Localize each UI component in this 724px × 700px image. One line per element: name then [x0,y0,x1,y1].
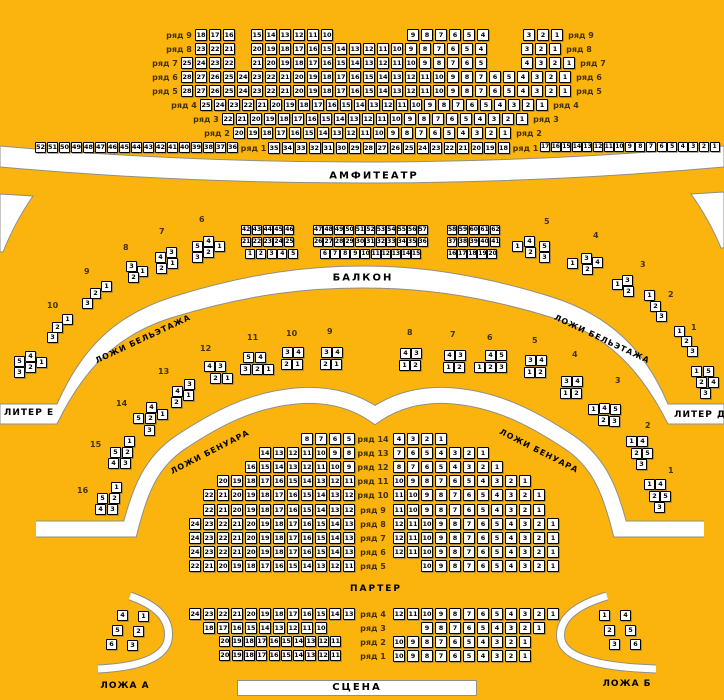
seat-6[interactable]: 6 [463,489,475,501]
seat-7[interactable]: 7 [407,461,419,473]
seat-60[interactable]: 60 [469,225,479,235]
seat-15[interactable]: 15 [315,532,327,544]
seat-7[interactable]: 7 [435,475,447,487]
seat-11[interactable]: 11 [330,650,341,661]
seat-18[interactable]: 18 [273,608,285,620]
seat-10[interactable]: 10 [410,99,422,111]
seat-16[interactable]: 16 [245,461,257,473]
seat-1[interactable]: 1 [222,373,233,384]
seat-43[interactable]: 43 [143,142,154,153]
seat-7[interactable]: 7 [415,127,427,139]
seat-16[interactable]: 16 [326,99,338,111]
seat-7[interactable]: 7 [435,650,447,662]
seat-7[interactable]: 7 [435,636,447,648]
seat-1[interactable]: 1 [691,366,702,377]
seat-22[interactable]: 22 [217,546,229,558]
seat-19[interactable]: 19 [259,532,271,544]
seat-21[interactable]: 21 [231,546,243,558]
seat-51[interactable]: 51 [47,142,58,153]
seat-3[interactable]: 3 [656,311,667,322]
seat-38[interactable]: 38 [458,237,468,247]
seat-24[interactable]: 24 [189,546,201,558]
seat-5[interactable]: 5 [503,71,515,83]
seat-14[interactable]: 14 [315,504,327,516]
seat-12[interactable]: 12 [393,546,405,558]
seat-22[interactable]: 22 [217,518,229,530]
seat-10[interactable]: 10 [393,475,405,487]
seat-42[interactable]: 42 [241,225,251,235]
seat-1[interactable]: 1 [183,390,194,401]
seat-18[interactable]: 18 [298,99,310,111]
seat-6[interactable]: 6 [449,650,461,662]
seat-5[interactable]: 5 [97,493,108,504]
seat-1[interactable]: 1 [644,479,655,490]
seat-5[interactable]: 5 [667,142,677,152]
seat-24[interactable]: 24 [195,57,207,69]
seat-16[interactable]: 16 [289,127,301,139]
seat-4[interactable]: 4 [620,610,631,621]
seat-9[interactable]: 9 [407,475,419,487]
seat-43[interactable]: 43 [252,225,262,235]
seat-3[interactable]: 3 [471,127,483,139]
seat-9[interactable]: 9 [405,43,417,55]
seat-1[interactable]: 1 [62,314,73,325]
seat-7[interactable]: 7 [646,142,656,152]
seat-21[interactable]: 21 [236,113,248,125]
seat-46[interactable]: 46 [284,225,294,235]
seat-1[interactable]: 1 [547,518,559,530]
seat-7[interactable]: 7 [449,489,461,501]
seat-7[interactable]: 7 [475,85,487,97]
seat-1[interactable]: 1 [474,362,485,373]
seat-18[interactable]: 18 [273,546,285,558]
seat-7[interactable]: 7 [432,113,444,125]
seat-4[interactable]: 4 [117,610,128,621]
seat-1[interactable]: 1 [435,433,447,445]
seat-18[interactable]: 18 [261,127,273,139]
seat-9[interactable]: 9 [387,127,399,139]
seat-2[interactable]: 2 [598,415,609,426]
seat-19[interactable]: 19 [245,489,257,501]
seat-1[interactable]: 1 [519,650,531,662]
seat-18[interactable]: 18 [279,43,291,55]
seat-2[interactable]: 2 [623,286,634,297]
seat-16[interactable]: 16 [307,43,319,55]
seat-30[interactable]: 30 [336,142,348,154]
seat-3[interactable]: 3 [508,99,520,111]
seat-10[interactable]: 10 [329,461,341,473]
seat-41[interactable]: 41 [167,142,178,153]
seat-2[interactable]: 2 [122,447,133,458]
seat-3[interactable]: 3 [491,636,503,648]
seat-4[interactable]: 4 [505,546,517,558]
seat-14[interactable]: 14 [401,249,411,259]
seat-18[interactable]: 18 [273,532,285,544]
seat-8[interactable]: 8 [461,85,473,97]
seat-13[interactable]: 13 [329,504,341,516]
seat-6[interactable]: 6 [449,475,461,487]
seat-25[interactable]: 25 [223,71,235,83]
seat-8[interactable]: 8 [418,113,430,125]
seat-2[interactable]: 2 [696,377,707,388]
seat-18[interactable]: 18 [498,142,510,154]
seat-19[interactable]: 19 [259,546,271,558]
seat-19[interactable]: 19 [279,57,291,69]
seat-12[interactable]: 12 [377,57,389,69]
seat-21[interactable]: 21 [279,71,291,83]
seat-3[interactable]: 3 [654,502,665,513]
seat-20[interactable]: 20 [217,475,229,487]
seat-53[interactable]: 53 [376,225,386,235]
seat-8[interactable]: 8 [421,475,433,487]
seat-24[interactable]: 24 [189,518,201,530]
seat-21[interactable]: 21 [457,142,469,154]
seat-20[interactable]: 20 [251,43,263,55]
seat-4[interactable]: 4 [25,351,36,362]
seat-16[interactable]: 16 [301,546,313,558]
seat-14[interactable]: 14 [329,546,341,558]
seat-1[interactable]: 1 [599,610,610,621]
seat-3[interactable]: 3 [525,355,536,366]
seat-4[interactable]: 4 [655,479,666,490]
seat-5[interactable]: 5 [491,532,503,544]
seat-12[interactable]: 12 [393,608,405,620]
seat-17[interactable]: 17 [540,142,550,152]
seat-18[interactable]: 18 [203,622,215,634]
seat-45[interactable]: 45 [119,142,130,153]
seat-7[interactable]: 7 [315,433,327,445]
seat-1[interactable]: 1 [536,99,548,111]
seat-4[interactable]: 4 [572,376,583,387]
seat-2[interactable]: 2 [145,413,156,424]
seat-32[interactable]: 32 [376,237,386,247]
seat-15[interactable]: 15 [561,142,571,152]
seat-3[interactable]: 3 [282,347,293,358]
seat-15[interactable]: 15 [363,85,375,97]
seat-26[interactable]: 26 [209,85,221,97]
seat-12[interactable]: 12 [287,622,299,634]
seat-22[interactable]: 22 [242,99,254,111]
seat-3[interactable]: 3 [496,362,507,373]
seat-18[interactable]: 18 [467,249,477,259]
seat-3[interactable]: 3 [531,85,543,97]
seat-1[interactable]: 1 [214,241,225,252]
seat-13[interactable]: 13 [331,127,343,139]
seat-1[interactable]: 1 [36,357,47,368]
seat-5[interactable]: 5 [480,99,492,111]
seat-54[interactable]: 54 [386,225,396,235]
seat-10[interactable]: 10 [393,650,405,662]
seat-1[interactable]: 1 [547,546,559,558]
seat-7[interactable]: 7 [449,622,461,634]
seat-20[interactable]: 20 [233,127,245,139]
seat-4[interactable]: 4 [599,403,610,414]
seat-1[interactable]: 1 [547,560,559,572]
seat-24[interactable]: 24 [189,608,201,620]
seat-2[interactable]: 2 [631,448,642,459]
seat-22[interactable]: 22 [203,504,215,516]
seat-2[interactable]: 2 [109,493,120,504]
seat-13[interactable]: 13 [391,85,403,97]
seat-14[interactable]: 14 [315,489,327,501]
seat-46[interactable]: 46 [107,142,118,153]
seat-9[interactable]: 9 [421,489,433,501]
seat-17[interactable]: 17 [217,622,229,634]
seat-4[interactable]: 4 [592,257,603,268]
seat-4[interactable]: 4 [435,447,447,459]
seat-5[interactable]: 5 [642,448,653,459]
seat-21[interactable]: 21 [231,518,243,530]
seat-6[interactable]: 6 [489,71,501,83]
seat-58[interactable]: 58 [447,225,457,235]
seat-13[interactable]: 13 [391,71,403,83]
seat-4[interactable]: 4 [108,458,119,469]
seat-2[interactable]: 2 [535,367,546,378]
seat-27[interactable]: 27 [195,85,207,97]
seat-15[interactable]: 15 [320,113,332,125]
seat-15[interactable]: 15 [301,504,313,516]
seat-20[interactable]: 20 [217,560,229,572]
seat-36[interactable]: 36 [418,237,428,247]
seat-2[interactable]: 2 [203,247,214,258]
seat-16[interactable]: 16 [273,560,285,572]
seat-10[interactable]: 10 [614,142,624,152]
seat-5[interactable]: 5 [491,560,503,572]
seat-16[interactable]: 16 [301,532,313,544]
seat-11[interactable]: 11 [407,608,419,620]
seat-3[interactable]: 3 [535,57,547,69]
seat-1[interactable]: 1 [551,29,563,41]
seat-14[interactable]: 14 [349,57,361,69]
seat-15[interactable]: 15 [287,560,299,572]
seat-10[interactable]: 10 [315,622,327,634]
seat-12[interactable]: 12 [363,43,375,55]
seat-8[interactable]: 8 [301,433,313,445]
seat-3[interactable]: 3 [519,546,531,558]
seat-5[interactable]: 5 [443,127,455,139]
seat-13[interactable]: 13 [315,475,327,487]
seat-2[interactable]: 2 [156,263,167,274]
seat-11[interactable]: 11 [419,85,431,97]
seat-3[interactable]: 3 [126,261,137,272]
seat-3[interactable]: 3 [505,504,517,516]
seat-1[interactable]: 1 [491,461,503,473]
seat-47[interactable]: 47 [95,142,106,153]
seat-1[interactable]: 1 [331,359,342,370]
seat-24[interactable]: 24 [417,142,429,154]
seat-1[interactable]: 1 [101,281,112,292]
seat-11[interactable]: 11 [301,622,313,634]
seat-2[interactable]: 2 [421,433,433,445]
seat-13[interactable]: 13 [391,249,401,259]
seat-7[interactable]: 7 [433,43,445,55]
seat-3[interactable]: 3 [192,252,203,263]
seat-3[interactable]: 3 [144,425,155,436]
seat-3[interactable]: 3 [636,459,647,470]
seat-4[interactable]: 4 [203,236,214,247]
seat-16[interactable]: 16 [551,142,561,152]
seat-3[interactable]: 3 [120,458,131,469]
seat-15[interactable]: 15 [411,249,421,259]
seat-1[interactable]: 1 [644,290,655,301]
seat-1[interactable]: 1 [626,436,637,447]
seat-17[interactable]: 17 [256,650,267,661]
seat-49[interactable]: 49 [334,225,344,235]
seat-4[interactable]: 4 [517,71,529,83]
seat-22[interactable]: 22 [223,57,235,69]
seat-11[interactable]: 11 [407,546,419,558]
seat-18[interactable]: 18 [245,560,257,572]
seat-5[interactable]: 5 [610,404,621,415]
seat-17[interactable]: 17 [307,57,319,69]
seat-9[interactable]: 9 [435,560,447,572]
seat-22[interactable]: 22 [265,71,277,83]
seat-16[interactable]: 16 [269,636,280,647]
seat-9[interactable]: 9 [447,71,459,83]
seat-55[interactable]: 55 [397,225,407,235]
seat-21[interactable]: 21 [251,57,263,69]
seat-6[interactable]: 6 [447,43,459,55]
seat-2[interactable]: 2 [699,142,709,152]
seat-4[interactable]: 4 [505,560,517,572]
seat-13[interactable]: 13 [287,461,299,473]
seat-1[interactable]: 1 [512,241,523,252]
seat-28[interactable]: 28 [363,142,375,154]
seat-11[interactable]: 11 [419,71,431,83]
seat-9[interactable]: 9 [407,636,419,648]
seat-1[interactable]: 1 [157,409,168,420]
seat-3[interactable]: 3 [127,640,138,651]
seat-3[interactable]: 3 [531,71,543,83]
seat-7[interactable]: 7 [463,560,475,572]
seat-3[interactable]: 3 [519,532,531,544]
seat-2[interactable]: 2 [485,127,497,139]
seat-13[interactable]: 13 [305,636,316,647]
seat-7[interactable]: 7 [463,532,475,544]
seat-15[interactable]: 15 [315,608,327,620]
seat-10[interactable]: 10 [421,532,433,544]
seat-14[interactable]: 14 [301,560,313,572]
seat-3[interactable]: 3 [521,43,533,55]
seat-3[interactable]: 3 [449,447,461,459]
seat-3[interactable]: 3 [523,29,535,41]
seat-5[interactable]: 5 [491,518,503,530]
seat-4[interactable]: 4 [477,650,489,662]
seat-9[interactable]: 9 [419,57,431,69]
seat-14[interactable]: 14 [265,29,277,41]
seat-6[interactable]: 6 [657,142,667,152]
seat-22[interactable]: 22 [203,489,215,501]
seat-19[interactable]: 19 [307,71,319,83]
seat-20[interactable]: 20 [245,518,257,530]
seat-2[interactable]: 2 [505,650,517,662]
seat-9[interactable]: 9 [407,650,419,662]
seat-4[interactable]: 4 [505,518,517,530]
seat-4[interactable]: 4 [491,489,503,501]
seat-23[interactable]: 23 [203,518,215,530]
seat-34[interactable]: 34 [282,142,294,154]
seat-14[interactable]: 14 [335,43,347,55]
seat-5[interactable]: 5 [463,636,475,648]
seat-3[interactable]: 3 [491,650,503,662]
seat-18[interactable]: 18 [278,113,290,125]
seat-13[interactable]: 13 [273,447,285,459]
seat-12[interactable]: 12 [593,142,603,152]
seat-3[interactable]: 3 [609,639,620,650]
seat-23[interactable]: 23 [209,57,221,69]
seat-1[interactable]: 1 [563,57,575,69]
seat-23[interactable]: 23 [203,532,215,544]
seat-11[interactable]: 11 [407,518,419,530]
seat-7[interactable]: 7 [475,71,487,83]
seat-13[interactable]: 13 [349,43,361,55]
seat-2[interactable]: 2 [537,29,549,41]
seat-19[interactable]: 19 [264,113,276,125]
seat-5[interactable]: 5 [463,29,475,41]
seat-2[interactable]: 2 [25,362,36,373]
seat-9[interactable]: 9 [435,518,447,530]
seat-44[interactable]: 44 [131,142,142,153]
seat-17[interactable]: 17 [287,532,299,544]
seat-19[interactable]: 19 [284,99,296,111]
seat-16[interactable]: 16 [349,85,361,97]
seat-7[interactable]: 7 [463,608,475,620]
seat-15[interactable]: 15 [335,57,347,69]
seat-4[interactable]: 4 [277,249,287,259]
seat-1[interactable]: 1 [124,436,135,447]
seat-25[interactable]: 25 [200,99,212,111]
seat-4[interactable]: 4 [475,43,487,55]
seat-17[interactable]: 17 [287,518,299,530]
seat-2[interactable]: 2 [502,113,514,125]
seat-6[interactable]: 6 [461,57,473,69]
seat-16[interactable]: 16 [321,57,333,69]
seat-1[interactable]: 1 [443,362,454,373]
seat-3[interactable]: 3 [321,347,332,358]
seat-12[interactable]: 12 [318,636,329,647]
seat-5[interactable]: 5 [463,475,475,487]
seat-2[interactable]: 2 [525,247,536,258]
seat-18[interactable]: 18 [321,85,333,97]
seat-8[interactable]: 8 [449,532,461,544]
seat-8[interactable]: 8 [421,636,433,648]
seat-34[interactable]: 34 [397,237,407,247]
seat-19[interactable]: 19 [232,650,243,661]
seat-3[interactable]: 3 [166,247,177,258]
seat-4[interactable]: 4 [477,475,489,487]
seat-22[interactable]: 22 [217,532,229,544]
seat-5[interactable]: 5 [133,413,144,424]
seat-12[interactable]: 12 [405,71,417,83]
seat-28[interactable]: 28 [181,85,193,97]
seat-17[interactable]: 17 [335,71,347,83]
seat-2[interactable]: 2 [519,489,531,501]
seat-4[interactable]: 4 [449,461,461,473]
seat-13[interactable]: 13 [273,622,285,634]
seat-4[interactable]: 4 [708,377,719,388]
seat-4[interactable]: 4 [155,252,166,263]
seat-6[interactable]: 6 [329,433,341,445]
seat-10[interactable]: 10 [421,608,433,620]
seat-2[interactable]: 2 [533,608,545,620]
seat-2[interactable]: 2 [533,532,545,544]
seat-17[interactable]: 17 [256,636,267,647]
seat-4[interactable]: 4 [95,504,106,515]
seat-7[interactable]: 7 [393,447,405,459]
seat-2[interactable]: 2 [171,397,182,408]
seat-20[interactable]: 20 [219,636,230,647]
seat-4[interactable]: 4 [204,361,215,372]
